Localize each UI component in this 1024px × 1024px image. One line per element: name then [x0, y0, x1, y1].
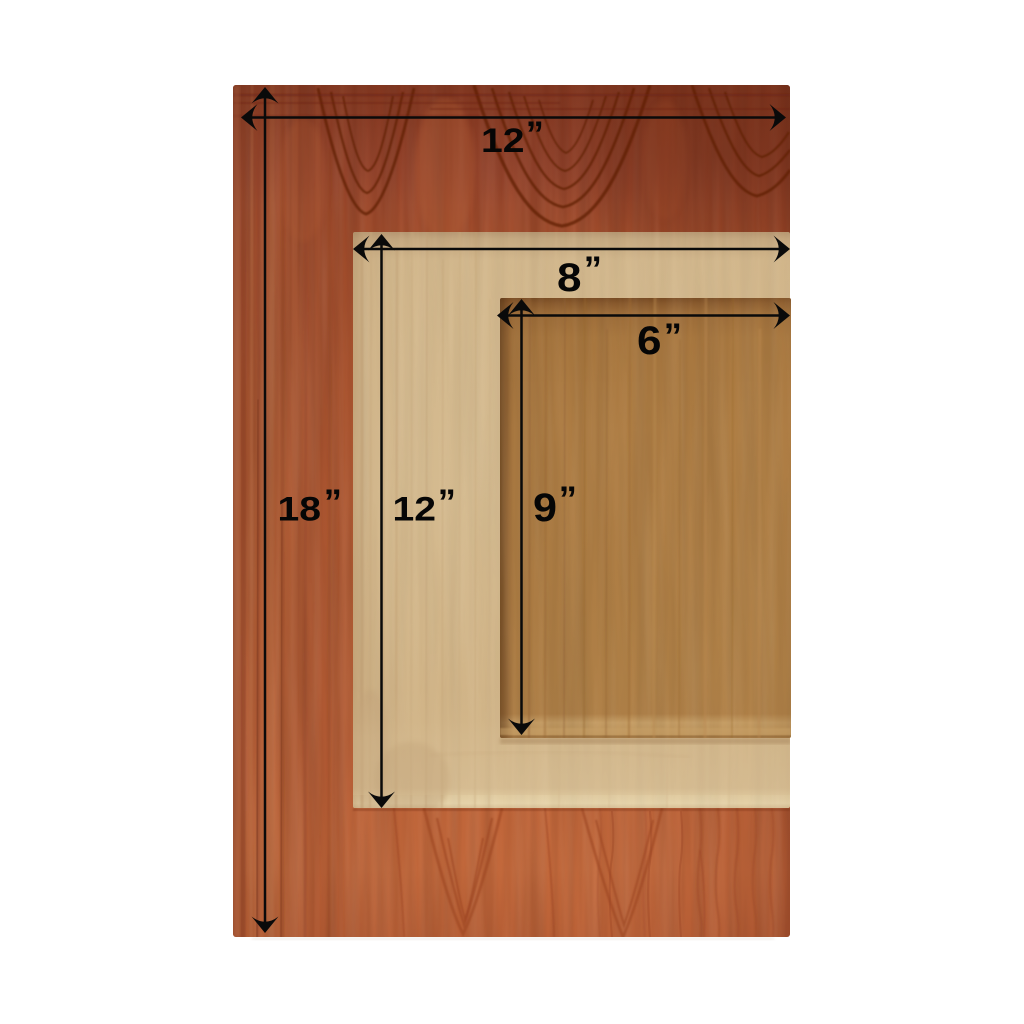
svg-text:’’: ’’	[438, 482, 455, 523]
svg-text:’’: ’’	[526, 114, 543, 155]
svg-text:’’: ’’	[584, 249, 601, 290]
svg-text:’’: ’’	[559, 479, 576, 520]
svg-text:12: 12	[393, 491, 437, 529]
svg-text:’’: ’’	[664, 316, 681, 357]
svg-text:18: 18	[278, 491, 322, 529]
svg-text:’’: ’’	[324, 482, 341, 523]
svg-text:6: 6	[637, 319, 662, 363]
svg-text:12: 12	[481, 122, 525, 160]
svg-text:9: 9	[533, 486, 557, 530]
svg-text:8: 8	[557, 256, 582, 300]
